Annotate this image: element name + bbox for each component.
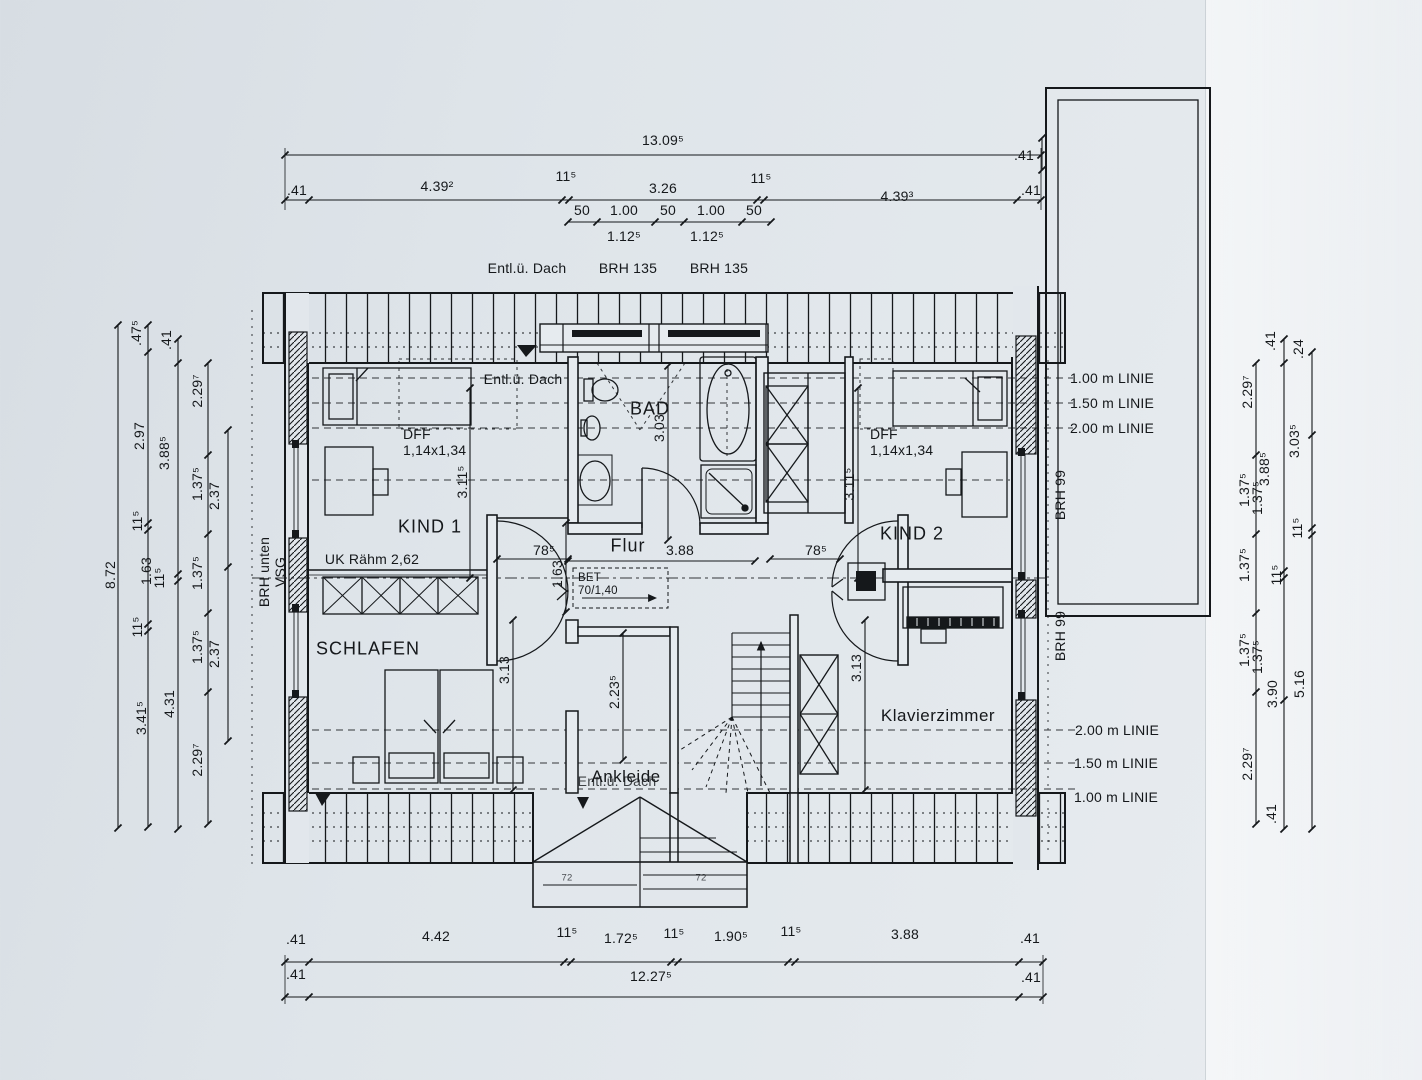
room-label-ankleide: Ankleide <box>591 767 660 787</box>
dim-top: 3.26 <box>649 180 677 196</box>
dim-window: 1.00 <box>697 202 725 218</box>
room-label-flur: Flur <box>611 536 646 557</box>
dim-bottom-overall: .41 <box>1021 969 1041 985</box>
dim-left: .41 <box>158 330 174 350</box>
dim-dormer: 72 <box>562 874 573 885</box>
note-sill-height: BRH 135 <box>599 260 657 276</box>
dim-top: .41 <box>287 182 307 198</box>
dim-window: 1.00 <box>610 202 638 218</box>
dim-bottom: 11⁵ <box>557 924 578 940</box>
dim-top-overall: 13.09⁵ <box>642 132 684 148</box>
scanned-floor-plan-sheet: { "colors": { "paper": "#e2e7ec", "ink":… <box>0 0 1422 1080</box>
dim-right: 2.29⁷ <box>1239 375 1255 408</box>
dim-left: 2.37 <box>206 482 222 510</box>
dim-left: 1.37⁵ <box>189 556 205 590</box>
dim-right: .41 <box>1263 804 1279 824</box>
dim-right: 3.03⁵ <box>1286 424 1302 458</box>
dim-window: 1.12⁵ <box>607 228 641 244</box>
dim-left: 2.29⁷ <box>189 374 205 407</box>
dim-bottom: .41 <box>1020 930 1040 946</box>
dim-schlafen-depth: 3.13 <box>496 656 512 684</box>
dim-klavier-depth: 3.13 <box>848 654 864 682</box>
note-height-line: 2.00 m LINIE <box>1070 420 1154 436</box>
dim-top: .41 <box>1021 182 1041 198</box>
note-sill-brh99-a: BRH 99 <box>1052 470 1068 520</box>
dim-window: 50 <box>746 202 762 218</box>
note-beam-height: UK Rähm 2,62 <box>325 551 419 567</box>
dim-flur-width: 3.88 <box>666 542 694 558</box>
note-sill-vsg: BRH unten VSG <box>256 537 288 607</box>
dim-bottom: .41 <box>286 931 306 947</box>
dim-right: .24 <box>1290 339 1306 359</box>
room-label-schlafen: SCHLAFEN <box>316 639 420 660</box>
note-vent-roof: Entl.ü. Dach <box>488 260 567 276</box>
dim-left: 3.88⁵ <box>156 436 172 470</box>
dim-window: 1.12⁵ <box>690 228 724 244</box>
note-sill-height: BRH 135 <box>690 260 748 276</box>
note-height-line: 2.00 m LINIE <box>1075 722 1159 738</box>
dim-dormer: 72 <box>696 874 707 885</box>
sheet-background: 13.09⁵ .41 4.39² 11⁵ 3.26 11⁵ 4.39³ .41 … <box>0 0 1422 1080</box>
dim-bottom: 11⁵ <box>664 925 685 941</box>
note-height-line: 1.00 m LINIE <box>1070 370 1154 386</box>
dim-door-right: 78⁵ <box>805 542 827 558</box>
dim-window: 50 <box>574 202 590 218</box>
dim-right: 11⁵ <box>1268 565 1284 586</box>
dim-left: 2.97 <box>131 422 147 450</box>
dim-bottom: 1.72⁵ <box>604 930 638 946</box>
dim-right: 1.37⁵ <box>1249 640 1265 674</box>
room-label-klavierzimmer: Klavierzimmer <box>881 706 995 726</box>
note-sill-brh99-b: BRH 99 <box>1052 611 1068 661</box>
note-height-line: 1.50 m LINIE <box>1074 755 1158 771</box>
dim-left: 1.37⁵ <box>189 630 205 664</box>
room-label-kind2: KIND 2 <box>880 524 944 545</box>
dim-flur-niche: 1.63 <box>549 560 565 588</box>
note-loft-ladder: BET 70/1,40 <box>578 572 618 598</box>
dim-bottom-overall: .41 <box>286 966 306 982</box>
note-vent-roof-kind1: Entl.ü. Dach <box>484 371 563 387</box>
dim-ankleide-depth: 2.23⁵ <box>606 675 622 709</box>
room-label-bad: BAD <box>630 399 670 420</box>
dim-left: 2.29⁷ <box>189 743 205 776</box>
note-skylight-right: DFF 1,14x1,34 <box>870 426 933 458</box>
dim-right: 2.29⁷ <box>1239 747 1255 780</box>
dim-top: 11⁵ <box>751 170 772 186</box>
height-reference-lines <box>252 310 1078 868</box>
dim-left: 11⁵ <box>129 617 145 638</box>
dim-left: .47⁵ <box>128 320 144 346</box>
dim-right: .41 <box>1262 331 1278 351</box>
floor-plan-drawing <box>0 0 1422 1080</box>
entrance-dormer <box>533 797 747 907</box>
dim-bottom: 3.88 <box>891 926 919 942</box>
dim-kind2-width: 3.11⁵ <box>841 467 857 500</box>
dim-kind1-width: 3.11⁵ <box>454 465 470 498</box>
dim-left: 2.37 <box>206 640 222 668</box>
dim-window: 50 <box>660 202 676 218</box>
dim-left: 11⁵ <box>129 511 145 532</box>
dim-left: 1.37⁵ <box>189 467 205 501</box>
dim-annex: .41 <box>1014 147 1034 163</box>
room-label-kind1: KIND 1 <box>398 517 462 538</box>
annex-outline <box>1046 88 1210 616</box>
dim-left: 3.41⁵ <box>133 701 149 735</box>
dim-bottom-overall: 12.27⁵ <box>630 968 672 984</box>
dim-right: 5.16 <box>1291 670 1307 698</box>
dim-left: 4.31 <box>161 690 177 718</box>
dim-left: 11⁵ <box>151 568 167 589</box>
dim-left: 8.72 <box>102 561 118 589</box>
dim-door-left: 78⁵ <box>533 542 555 558</box>
note-height-line: 1.00 m LINIE <box>1074 789 1158 805</box>
dim-top: 4.39² <box>421 178 454 194</box>
dim-right: 11⁵ <box>1289 518 1305 539</box>
note-height-line: 1.50 m LINIE <box>1070 395 1154 411</box>
top-window-strip <box>540 324 768 352</box>
dim-bottom: 1.90⁵ <box>714 928 748 944</box>
dim-bottom: 4.42 <box>422 928 450 944</box>
dim-right: 3.90 <box>1264 680 1280 708</box>
dim-right: 1.37⁵ <box>1236 548 1252 582</box>
note-skylight-left: DFF 1,14x1,34 <box>403 426 466 458</box>
dim-bottom: 11⁵ <box>781 923 802 939</box>
dim-top: 11⁵ <box>556 168 577 184</box>
dim-top: 4.39³ <box>881 188 914 204</box>
dim-right: 1.37⁵ <box>1249 481 1265 515</box>
